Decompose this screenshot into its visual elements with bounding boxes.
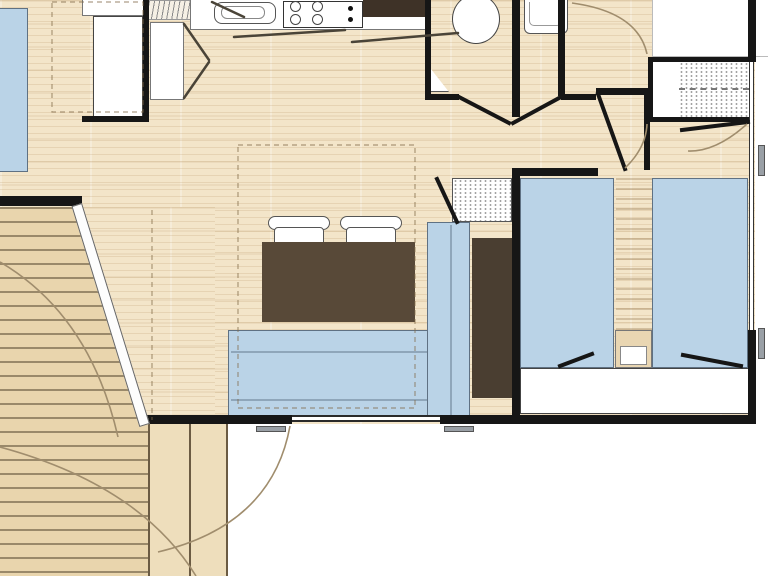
wall-hall-stub-left [425,94,459,100]
wall-right-top [748,0,756,62]
wall-wc-left [425,0,431,98]
foot-of-bed-cabinet [520,368,750,414]
shower-room [648,57,754,122]
outside-step-strip [148,424,228,576]
wall-twin-bedroom-top [512,168,598,176]
floor-plan [0,0,768,576]
tall-storage-cabinet [472,238,512,398]
between-beds-floor [616,178,652,330]
hatched-storage-shelf [452,178,512,222]
burner [290,1,301,12]
wall-washroom-right [558,0,565,96]
kitchen-counter-return [82,0,148,16]
step-strip-joint [189,424,191,576]
nightstand [615,330,652,368]
wall-hall-top [596,88,649,95]
twin-bed-left [520,178,614,368]
cooktop-knob [348,6,353,11]
sofa-seat-line [450,225,452,415]
wall-bottom-right [440,415,756,424]
burner [312,1,323,12]
wall-wc-washroom [512,0,520,117]
wall-hall-right [644,95,650,170]
window-handle [758,145,765,176]
sink-basin [221,6,265,19]
right-wall-window [749,62,754,330]
shower-tray-line [679,88,749,90]
wall-master-front [0,196,82,206]
burner [290,14,301,25]
kitchen-cabinet [150,22,184,100]
bottom-window [292,415,440,422]
cooktop-4-burners [283,1,363,28]
tall-fridge-unit [93,16,143,118]
master-bed [0,8,28,172]
nightstand-top [620,346,647,365]
counter-dark-section [363,0,428,17]
dining-table [262,242,415,322]
wall-kitchen-bedroom-v [143,0,149,122]
wall-living-bedroom [512,168,520,424]
wall-right-bottom [748,330,756,424]
window-handle [256,426,286,432]
window-handle [444,426,474,432]
burner [312,14,323,25]
sofa-bench-vertical [427,222,470,418]
twin-bed-right [652,178,748,368]
wall-hall-stub-right [561,94,596,100]
wall-kitchen-bedroom-h [82,116,149,122]
kitchen-sink [214,2,276,24]
wall-bottom-left [143,415,292,424]
window-handle [758,328,765,359]
cooktop-knob [348,17,353,22]
